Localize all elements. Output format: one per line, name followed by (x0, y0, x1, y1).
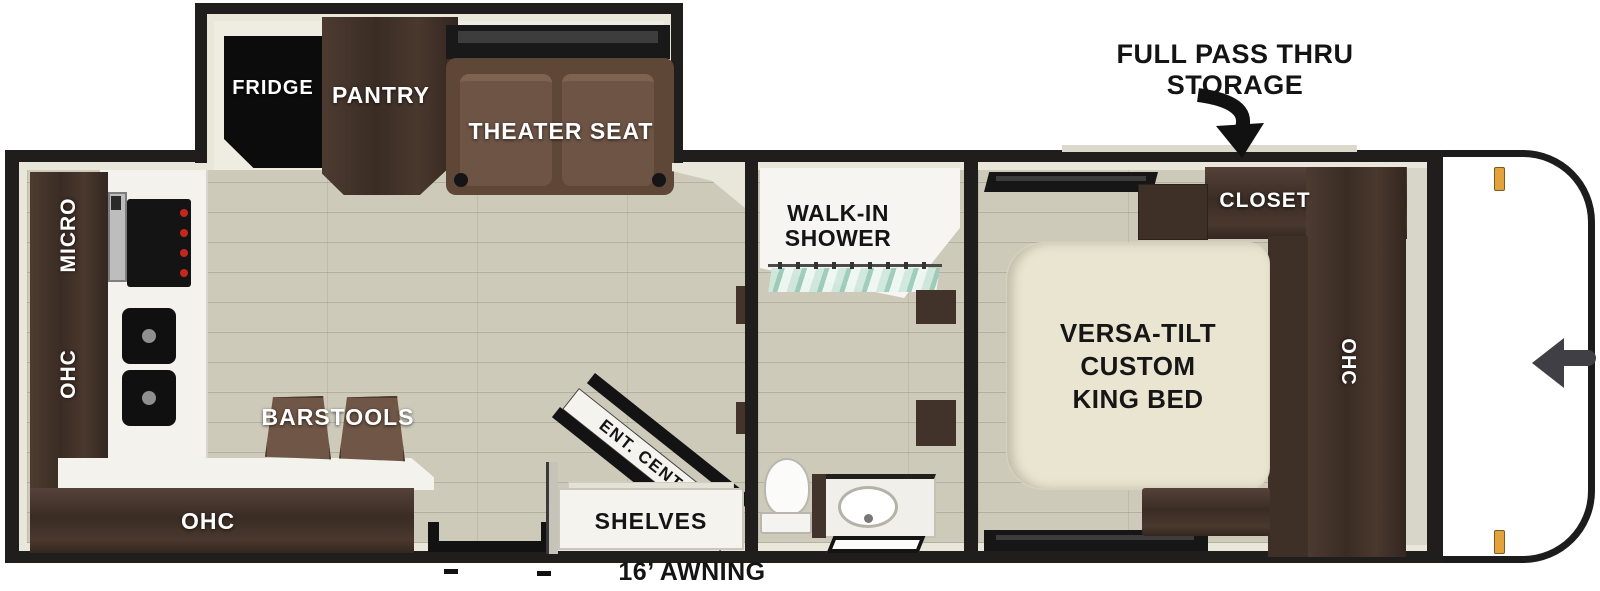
awning-bracket (444, 569, 458, 574)
shower-curtain-rod (768, 264, 942, 267)
front-wall-lining (1404, 168, 1428, 545)
toilet-tank (760, 512, 812, 534)
footboard-bench (1142, 488, 1270, 536)
hitch-tongue (1556, 350, 1596, 366)
bathroom-cabinet (916, 290, 956, 324)
entry-door (428, 522, 552, 552)
toilet (764, 458, 810, 516)
sink-basin (122, 370, 176, 426)
recliner-button (454, 173, 468, 187)
ohc-wall-label: OHC (56, 324, 82, 424)
burner-knob (180, 229, 188, 237)
shower-label-line2: SHOWER (785, 226, 892, 251)
bedroom-window-top (984, 172, 1158, 192)
curtain-hook (904, 262, 908, 269)
curtain-hook (814, 262, 818, 269)
king-bed: VERSA-TILT CUSTOM KING BED (1006, 242, 1270, 490)
barstools-label: BARSTOOLS (238, 404, 438, 430)
shower-glass (768, 268, 939, 292)
sink-faucet (864, 514, 873, 523)
shower-label-line1: WALK-IN (787, 201, 889, 226)
partition-wall (546, 462, 558, 554)
bath-mat (827, 536, 926, 553)
curtain-hook (886, 262, 890, 269)
ohc-counter-label: OHC (148, 508, 268, 534)
bathroom-wall-left (745, 162, 758, 551)
burner-knob (180, 269, 188, 277)
awning-bracket (537, 571, 551, 576)
bathroom-door-jamb (736, 402, 745, 434)
storage-label-line1: FULL PASS THRU (1116, 39, 1353, 70)
cooktop (127, 199, 191, 287)
micro-label: MICRO (56, 185, 82, 285)
bed-label-line3: KING BED (1072, 386, 1203, 412)
kitchen-sink (122, 308, 180, 430)
pantry-label: PANTRY (326, 82, 436, 108)
burner-knob (180, 209, 188, 217)
sink-drain (142, 329, 156, 343)
window-pane (458, 31, 658, 43)
awning-rail (1062, 145, 1357, 152)
headboard-cabinet (1138, 184, 1208, 240)
curtain-hook (850, 262, 854, 269)
bed-label-line2: CUSTOM (1080, 353, 1195, 379)
window-pane (996, 176, 1146, 181)
full-pass-thru-storage-label: FULL PASS THRU STORAGE (1090, 38, 1380, 102)
curtain-hook (778, 262, 782, 269)
bathroom-cabinet (916, 400, 956, 446)
shelves-label: SHELVES (566, 508, 736, 534)
bedside-wardrobe (1268, 236, 1308, 557)
bedroom-ohc-label: OHC (1335, 312, 1361, 412)
storage-label-line2: STORAGE (1167, 70, 1304, 101)
burner-knob (180, 249, 188, 257)
walk-in-shower-label: WALK-IN SHOWER (764, 198, 912, 254)
fridge (224, 36, 322, 168)
bathroom-wall-right (964, 162, 978, 551)
closet-label: CLOSET (1208, 188, 1322, 214)
front-wall (1427, 150, 1444, 563)
recliner-button (652, 173, 666, 187)
theater-seat-label: THEATER SEAT (456, 118, 666, 144)
curtain-hook (796, 262, 800, 269)
bed-label-line1: VERSA-TILT (1060, 320, 1216, 346)
microwave-vent (111, 196, 121, 210)
marker-light-top (1494, 167, 1505, 191)
curtain-hook (832, 262, 836, 269)
awning-label: 16’ AWNING (602, 558, 782, 586)
sink-drain (142, 391, 156, 405)
curtain-hook (868, 262, 872, 269)
curtain-hook (922, 262, 926, 269)
vanity-cabinet-side (812, 474, 826, 538)
kitchen-peninsula-counter (58, 458, 434, 490)
fridge-label: FRIDGE (227, 76, 319, 100)
bathroom-door-jamb (736, 286, 745, 324)
floorplan-canvas: ENT. CENTER VERSA-TILT CUSTOM KING BED (0, 0, 1600, 591)
marker-light-bottom (1494, 530, 1505, 554)
sink-basin (122, 308, 176, 364)
